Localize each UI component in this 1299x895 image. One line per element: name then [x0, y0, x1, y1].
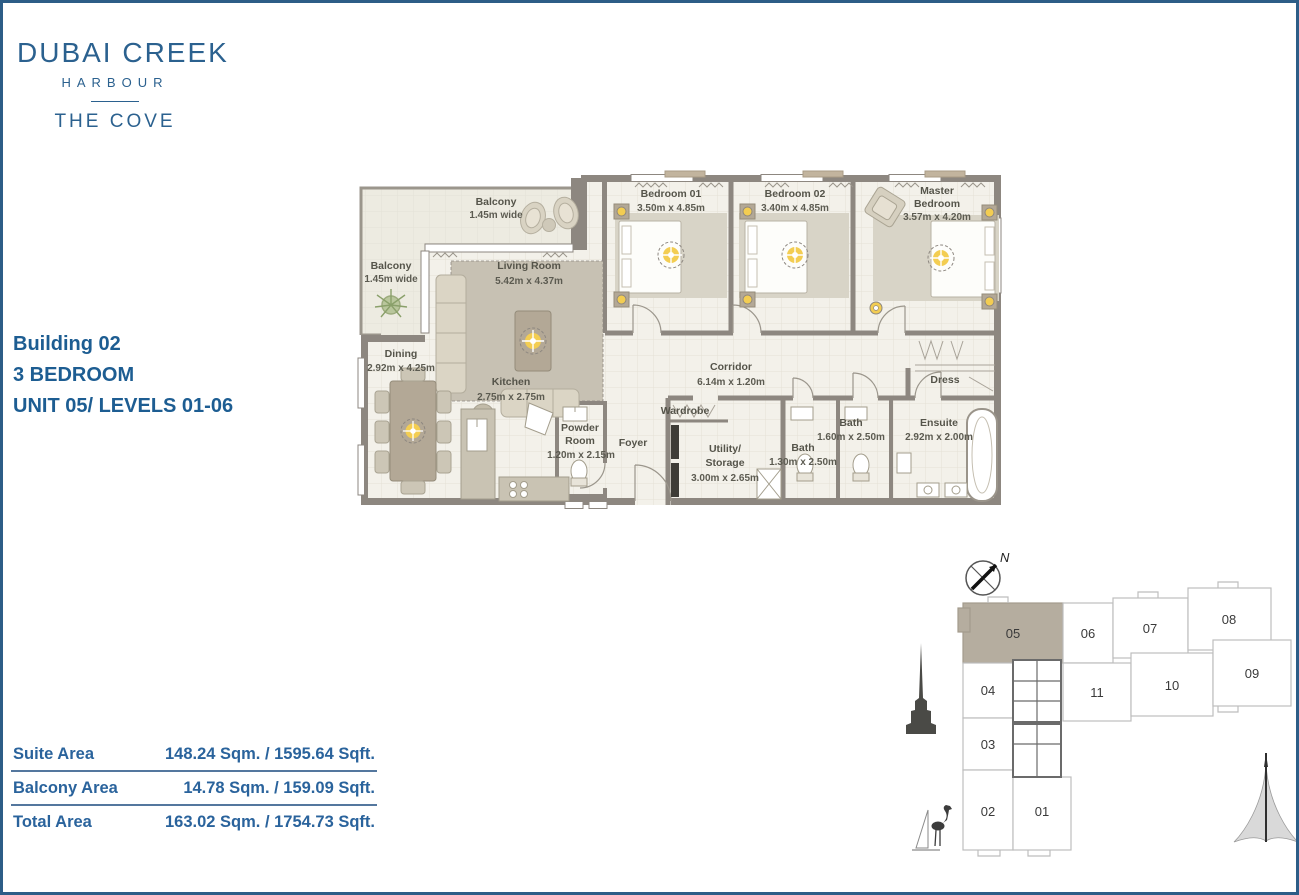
label-powder-2: Room: [565, 435, 595, 447]
dims-bath1: 1.30m x 2.50m: [769, 457, 837, 468]
area-value: 163.02 Sqm. / 1754.73 Sqft.: [165, 813, 375, 832]
unit-info-levels: UNIT 05/ LEVELS 01-06: [13, 391, 233, 422]
label-utility-2: Storage: [705, 457, 744, 469]
area-label: Balcony Area: [13, 779, 118, 798]
label-living: Living Room: [497, 260, 561, 272]
label-master-1: Master: [920, 185, 954, 197]
label-corridor: Corridor: [710, 361, 752, 373]
north-label: N: [1000, 550, 1010, 565]
label-dining: Dining: [385, 348, 418, 360]
keyplan-svg: N 05 06 07: [898, 548, 1298, 883]
area-label: Total Area: [13, 813, 92, 832]
label-wardrobe: Wardrobe: [661, 405, 710, 417]
brochure-page: DUBAI CREEK HARBOUR THE COVE Building 02…: [0, 0, 1299, 895]
dims-corridor: 6.14m x 1.20m: [697, 377, 765, 388]
dims-living: 5.42m x 4.37m: [495, 276, 563, 287]
keyplan: N 05 06 07: [898, 548, 1298, 888]
dims-utility: 3.00m x 2.65m: [691, 473, 759, 484]
label-powder-1: Powder: [561, 422, 599, 434]
dims-bedroom2: 3.40m x 4.85m: [761, 203, 829, 214]
unit-05: 05: [1006, 626, 1020, 641]
brand-subtitle: HARBOUR: [17, 75, 213, 90]
unit-08: 08: [1222, 612, 1236, 627]
area-row-suite: Suite Area 148.24 Sqm. / 1595.64 Sqft.: [11, 738, 377, 772]
unit-10: 10: [1165, 678, 1179, 693]
unit-03: 03: [981, 737, 995, 752]
unit-11: 11: [1090, 685, 1104, 700]
label-ensuite: Ensuite: [920, 417, 958, 429]
dims-powder: 1.20m x 2.15m: [547, 450, 615, 461]
label-dress: Dress: [930, 374, 959, 386]
label-kitchen: Kitchen: [492, 376, 531, 388]
dims-balcony-top: 1.45m wide: [469, 210, 523, 221]
label-balcony-top: Balcony: [476, 196, 517, 208]
floorplan: Balcony 1.45m wide Balcony 1.45m wide Li…: [333, 163, 1023, 538]
label-bath1: Bath: [791, 442, 814, 454]
dims-bath2: 1.60m x 2.50m: [817, 432, 885, 443]
unit-07: 07: [1143, 621, 1157, 636]
floorplan-svg: Balcony 1.45m wide Balcony 1.45m wide Li…: [333, 163, 1023, 533]
brand-divider: [91, 101, 139, 102]
unit-02: 02: [981, 804, 995, 819]
area-table: Suite Area 148.24 Sqm. / 1595.64 Sqft. B…: [11, 738, 377, 838]
burj-khalifa-icon: [906, 643, 936, 734]
brand-logo: DUBAI CREEK HARBOUR THE COVE: [17, 37, 213, 133]
dims-kitchen: 2.75m x 2.75m: [477, 392, 545, 403]
dims-dining: 2.92m x 4.25m: [367, 363, 435, 374]
label-foyer: Foyer: [619, 437, 648, 449]
creek-tower-icon: [1234, 753, 1298, 842]
area-row-total: Total Area 163.02 Sqm. / 1754.73 Sqft.: [11, 806, 377, 838]
keyplan-building: [958, 582, 1291, 856]
dims-ensuite: 2.92m x 2.00m: [905, 432, 973, 443]
label-bedroom2: Bedroom 02: [765, 188, 826, 200]
label-bath2: Bath: [839, 417, 862, 429]
dims-balcony-left: 1.45m wide: [364, 274, 418, 285]
unit-09: 09: [1245, 666, 1259, 681]
brand-title: DUBAI CREEK: [17, 37, 213, 69]
unit-info-building: Building 02: [13, 329, 233, 360]
unit-01: 01: [1035, 804, 1049, 819]
label-utility-1: Utility/: [709, 443, 741, 455]
dims-master: 3.57m x 4.20m: [903, 212, 971, 223]
compass-icon: N: [966, 550, 1010, 595]
label-master-2: Bedroom: [914, 198, 960, 210]
unit-06: 06: [1081, 626, 1095, 641]
area-row-balcony: Balcony Area 14.78 Sqm. / 159.09 Sqft.: [11, 772, 377, 806]
label-balcony-left: Balcony: [371, 260, 412, 272]
area-label: Suite Area: [13, 745, 94, 764]
label-bedroom1: Bedroom 01: [641, 188, 702, 200]
brand-project: THE COVE: [17, 111, 213, 133]
flamingo-icon: [912, 805, 952, 850]
area-value: 148.24 Sqm. / 1595.64 Sqft.: [165, 745, 375, 764]
area-value: 14.78 Sqm. / 159.09 Sqft.: [183, 779, 375, 798]
dims-bedroom1: 3.50m x 4.85m: [637, 203, 705, 214]
unit-info: Building 02 3 BEDROOM UNIT 05/ LEVELS 01…: [13, 329, 233, 422]
unit-04: 04: [981, 683, 995, 698]
unit-info-bedrooms: 3 BEDROOM: [13, 360, 233, 391]
